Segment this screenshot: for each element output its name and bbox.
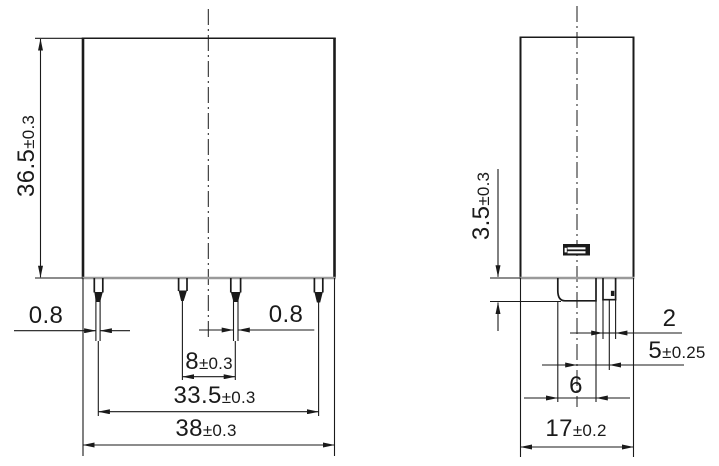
dim-tolerance: ±0.3: [199, 354, 233, 373]
dim-value: 8: [185, 348, 199, 375]
dim-value: 3.5: [468, 206, 495, 241]
side-view: [490, 6, 684, 457]
dim-label-side-tab-width: 6: [569, 374, 583, 398]
front-pin-4: [314, 278, 322, 303]
dim-value: 2: [663, 305, 677, 332]
dim-value: 5: [648, 337, 662, 364]
dim-label-front-pin-pitch: 8±0.3: [185, 350, 233, 374]
technical-drawing-sheet: 36.5±0.3 0.8 0.8 8±0.3 33.5±0.3 38±0.3 3…: [0, 0, 719, 466]
dim-label-front-width: 38±0.3: [175, 417, 236, 441]
dim-value: 0.8: [269, 301, 304, 328]
dim-value: 33.5: [173, 382, 221, 409]
dim-label-front-height: 36.5±0.3: [15, 115, 39, 197]
dim-value: 6: [569, 372, 583, 399]
side-pin-narrow-mark: [611, 291, 614, 296]
front-pin-2: [179, 278, 187, 301]
dim-tolerance: ±0.2: [573, 421, 607, 440]
front-pin-1: [94, 278, 103, 341]
dim-label-front-pin-span: 33.5±0.3: [173, 384, 255, 408]
dim-label-side-depth: 17±0.2: [545, 417, 606, 441]
side-body-slot: [563, 244, 590, 256]
dim-tolerance: ±0.3: [474, 172, 493, 206]
dim-tolerance: ±0.3: [19, 115, 38, 149]
dim-tolerance: ±0.25: [662, 343, 705, 362]
dim-tolerance: ±0.3: [222, 388, 256, 407]
side-dimension-lines: [498, 169, 684, 447]
dim-label-front-pin-tip-right: 0.8: [269, 303, 304, 327]
side-pins: [558, 278, 616, 301]
dim-label-front-pin-tip-left: 0.8: [29, 304, 64, 328]
dim-value: 36.5: [13, 149, 40, 197]
side-pin-narrow: [603, 278, 616, 300]
dim-value: 0.8: [29, 302, 64, 329]
dim-tolerance: ±0.3: [203, 421, 237, 440]
dim-label-side-pin-offset: 5±0.25: [648, 339, 705, 363]
dim-label-side-pin-length: 3.5±0.3: [470, 172, 494, 240]
dim-value: 38: [175, 415, 203, 442]
dim-label-side-pin-width: 2: [663, 307, 677, 331]
front-pin-3: [231, 278, 241, 341]
drawing-geometry: [0, 0, 719, 466]
dim-value: 17: [545, 415, 573, 442]
